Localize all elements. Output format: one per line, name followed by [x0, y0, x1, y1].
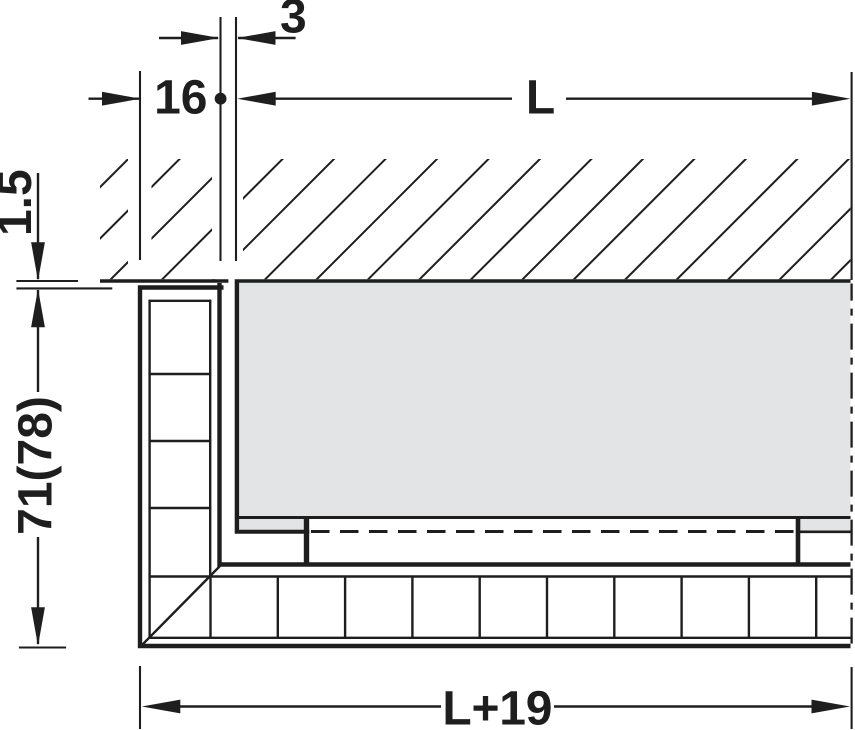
svg-text:3: 3: [280, 0, 307, 43]
svg-text:16: 16: [154, 71, 207, 124]
svg-text:71(78): 71(78): [9, 396, 62, 535]
svg-text:1.5: 1.5: [0, 169, 42, 236]
svg-text:L+19: L+19: [442, 682, 552, 730]
svg-text:L: L: [526, 71, 555, 124]
